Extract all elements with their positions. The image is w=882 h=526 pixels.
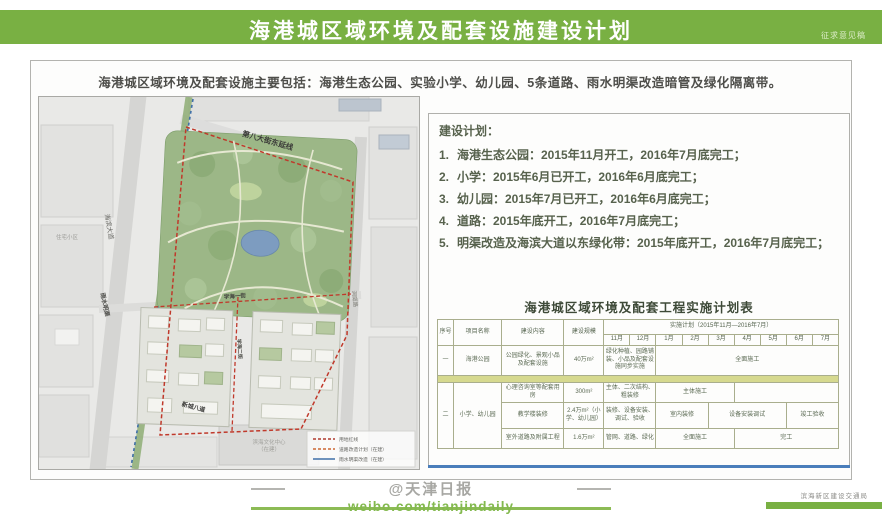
map-legend: 用地红线 道路改造计划（在建） 雨水明渠改造（在建） — [307, 431, 415, 467]
road-label-mid-vertical: 学海二街 — [235, 339, 243, 359]
schedule-table-title: 海港城区域环境及配套工程实施计划表 — [429, 297, 849, 316]
phase-bar: 室内装修 — [656, 403, 708, 429]
cell-scale: 300m² — [564, 383, 604, 403]
cell-note: 绿化种植、园路铺装、小品及配套设施同步实施 — [604, 346, 656, 376]
month-header: 7月 — [812, 335, 838, 346]
weibo-watermark: weibo.com/tianjindaily — [251, 498, 611, 520]
month-header: 1月 — [656, 335, 682, 346]
cell-content: 公园绿化、景观小品及配套设施 — [502, 346, 564, 376]
month-header: 11月 — [604, 335, 630, 346]
plan-item-number: 2. — [439, 166, 457, 188]
phase-bar: 竣工验收 — [786, 403, 838, 429]
cell-content: 教学楼装修 — [502, 403, 564, 429]
plan-heading: 建设计划： — [439, 122, 499, 139]
eco-park — [156, 130, 357, 322]
phase-bar: 设备安装调试 — [708, 403, 786, 429]
panel-blue-underline — [428, 465, 850, 468]
legend-label-road: 道路改造计划（在建） — [339, 446, 387, 453]
site-map-canvas: 第八大街东延线 海滨大道 雨水明渠 学海一街 学海二街 新城八道 洞庭路 住宅小… — [39, 97, 419, 469]
cell-note: 装修、设备安装、调试、验收 — [604, 403, 656, 429]
watermark-dash-left — [251, 488, 285, 490]
plan-item: 2. 小学：2015年6月已开工，2016年6月底完工； — [439, 166, 843, 188]
cell-content: 室外道路及附属工程 — [502, 429, 564, 449]
plan-item-text: 海港生态公园：2015年11月开工，2016年7月底完工； — [457, 144, 746, 166]
legend-label-redline: 用地红线 — [339, 436, 358, 443]
road-label-left: 海滨大道 — [103, 213, 116, 241]
plan-item: 1. 海港生态公园：2015年11月开工，2016年7月底完工； — [439, 144, 843, 166]
plan-item: 3. 幼儿园：2015年7月已开工，2016年6月底完工； — [439, 188, 843, 210]
weibo-url: weibo.com/tianjindaily — [344, 499, 518, 514]
plan-list: 1. 海港生态公园：2015年11月开工，2016年7月底完工； 2. 小学：2… — [439, 144, 843, 254]
table-row: 二 小学、幼儿园 心理咨询室等配套用房 300m² 主体、二次结构、粗装修 主体… — [438, 383, 839, 403]
phase-bar: 全面施工 — [656, 429, 734, 449]
watermark: @天津日报 — [251, 478, 611, 499]
col-header-scale: 建设规模 — [564, 320, 604, 346]
cell-name: 海港公园 — [454, 346, 502, 376]
plan-item-number: 4. — [439, 210, 457, 232]
table-row: 一 海港公园 公园绿化、景观小品及配套设施 40万m² 绿化种植、园路铺装、小品… — [438, 346, 839, 376]
watermark-dash-right — [577, 488, 611, 490]
plan-item: 4. 道路：2015年底开工，2016年7月底完工； — [439, 210, 843, 232]
cell-note: 主体、二次结构、粗装修 — [604, 383, 656, 403]
phase-bar: 完工 — [734, 429, 838, 449]
watermark-text: @天津日报 — [389, 481, 474, 498]
header-corner-note: 征求意见稿 — [821, 30, 866, 41]
month-header: 3月 — [708, 335, 734, 346]
cell-scale: 2.4万m²（小学、幼儿园） — [564, 403, 604, 429]
month-header: 4月 — [734, 335, 760, 346]
plan-item-number: 1. — [439, 144, 457, 166]
page-title: 海港城区域环境及配套设施建设计划 — [0, 15, 882, 45]
plan-item-text: 道路：2015年底开工，2016年7月底完工； — [457, 210, 685, 232]
plan-item-number: 5. — [439, 232, 457, 254]
phase-bar: 全面施工 — [656, 346, 839, 376]
cell-note: 管网、道路、绿化 — [604, 429, 656, 449]
month-header: 2月 — [682, 335, 708, 346]
col-header-content: 建设内容 — [502, 320, 564, 346]
area-label-line1: 滨海文化中心 — [252, 438, 286, 446]
month-header: 5月 — [760, 335, 786, 346]
school-blocks — [137, 308, 341, 431]
site-map: 第八大街东延线 海滨大道 雨水明渠 学海一街 学海二街 新城八道 洞庭路 住宅小… — [38, 96, 420, 470]
plan-item: 5. 明渠改造及海滨大道以东绿化带：2015年底开工，2016年7月底完工； — [439, 232, 843, 254]
cell-name: 小学、幼儿园 — [454, 383, 502, 449]
plan-item-text: 明渠改造及海滨大道以东绿化带：2015年底开工，2016年7月底完工； — [457, 232, 829, 254]
plan-item-text: 小学：2015年6月已开工，2016年6月底完工； — [457, 166, 704, 188]
plan-panel: 建设计划： 1. 海港生态公园：2015年11月开工，2016年7月底完工； 2… — [428, 113, 850, 467]
cell-seq: 二 — [438, 383, 454, 449]
schedule-table: 序号 项目名称 建设内容 建设规模 实施计划（2015年11月—2016年7月）… — [437, 319, 839, 449]
col-header-plan: 实施计划（2015年11月—2016年7月） — [604, 320, 839, 335]
phase-bar: 主体施工 — [656, 383, 734, 403]
cell-scale: 40万m² — [564, 346, 604, 376]
col-header-seq: 序号 — [438, 320, 454, 346]
district-label: 住宅小区 — [56, 233, 79, 241]
cell-seq: 一 — [438, 346, 454, 376]
agency-label: 滨海新区建设交通局 — [801, 490, 869, 500]
plan-item-text: 幼儿园：2015年7月已开工，2016年6月底完工； — [457, 188, 716, 210]
cell-content: 心理咨询室等配套用房 — [502, 383, 564, 403]
area-label-line2: （在建） — [258, 445, 280, 453]
month-header: 6月 — [786, 335, 812, 346]
phase-bar — [734, 383, 838, 403]
summary-text: 海港城区域环境及配套设施主要包括：海港生态公园、实验小学、幼儿园、5条道路、雨水… — [40, 72, 840, 91]
cell-scale: 1.6万m² — [564, 429, 604, 449]
month-header: 12月 — [630, 335, 656, 346]
agency-green-bar — [766, 502, 882, 509]
plan-poster: 海港城区域环境及配套设施建设计划 征求意见稿 海港城区域环境及配套设施主要包括：… — [0, 0, 882, 526]
legend-label-channel: 雨水明渠改造（在建） — [339, 456, 387, 463]
plan-item-number: 3. — [439, 188, 457, 210]
separator-row — [438, 376, 839, 383]
col-header-name: 项目名称 — [454, 320, 502, 346]
